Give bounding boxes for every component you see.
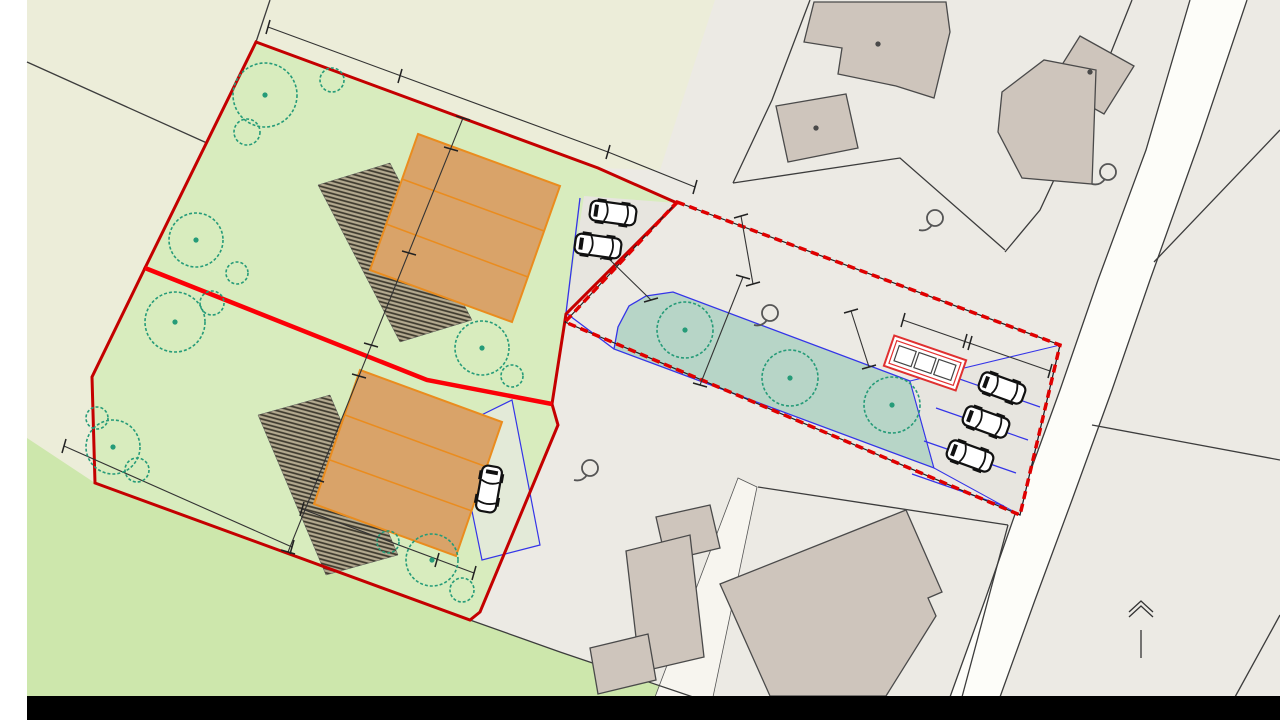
- territorial-study-map: [0, 0, 1280, 720]
- footer-bar: [27, 696, 1280, 720]
- building-point: [1088, 70, 1092, 74]
- remax-logo: [12, 42, 14, 92]
- logo-slash: [12, 39, 14, 95]
- site-plan-canvas: [0, 0, 1280, 720]
- building-point: [876, 42, 880, 46]
- building-point: [814, 126, 818, 130]
